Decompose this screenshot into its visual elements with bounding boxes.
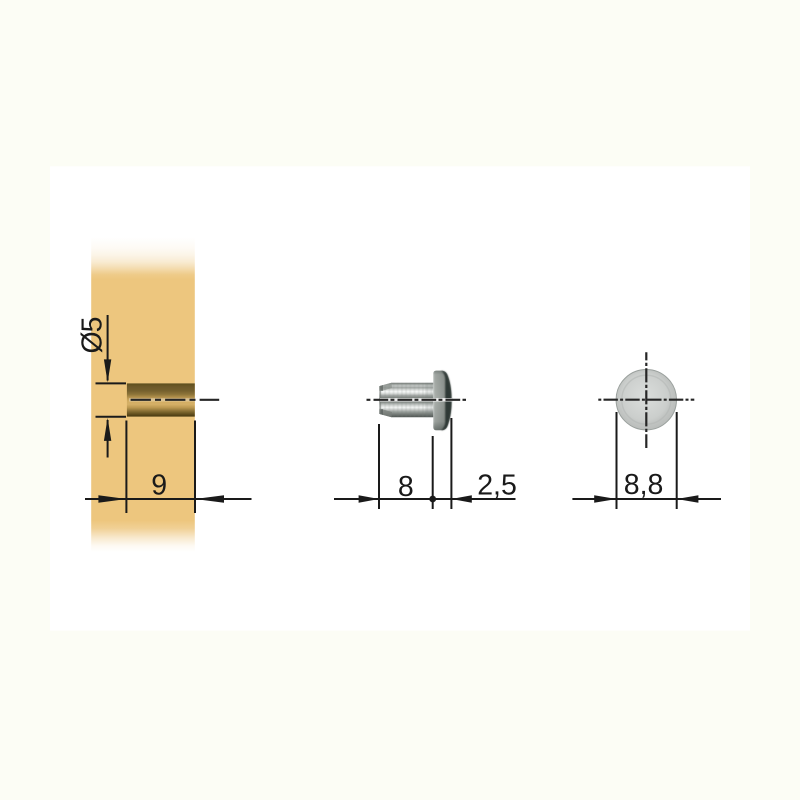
svg-text:Ø5: Ø5 <box>77 317 109 354</box>
svg-text:9: 9 <box>151 469 167 501</box>
svg-text:2,5: 2,5 <box>477 470 517 502</box>
svg-text:8,8: 8,8 <box>624 469 664 501</box>
svg-text:8: 8 <box>398 471 414 503</box>
